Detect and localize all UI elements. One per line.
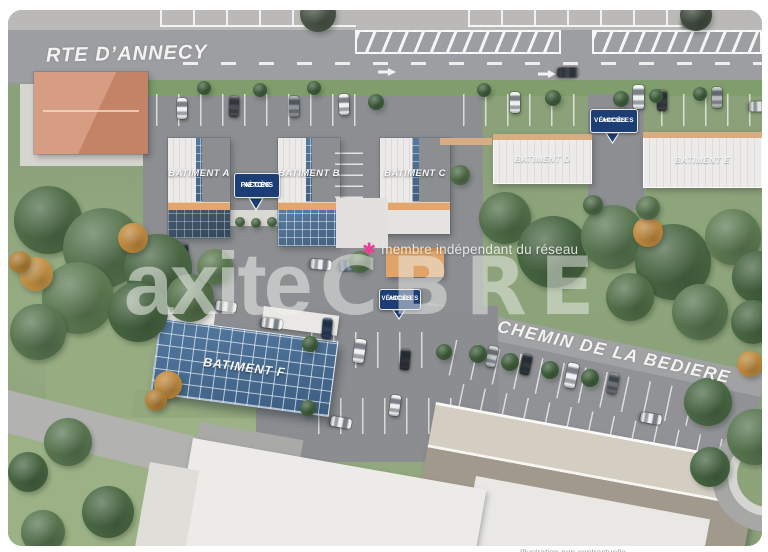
- tree: [253, 83, 267, 97]
- badge-line2: VÉHICULES: [594, 117, 634, 125]
- badge-pointer-icon: [248, 197, 264, 211]
- tree: [541, 361, 559, 379]
- tree: [300, 10, 336, 32]
- pedestrian-access-badge: ACCÈS PIÉTONS: [234, 173, 280, 198]
- tree: [672, 284, 728, 340]
- tree: [197, 249, 233, 285]
- tree: [436, 344, 452, 360]
- tree: [108, 282, 168, 342]
- tree: [469, 345, 487, 363]
- tree: [21, 510, 65, 546]
- tree: [307, 81, 321, 95]
- tree: [450, 165, 470, 185]
- tree: [737, 351, 762, 377]
- tree: [636, 196, 660, 220]
- brand-flower-icon: ✱: [362, 241, 376, 258]
- cropped-caption: Illustration non contractuelle: [520, 547, 626, 552]
- tree: [197, 81, 211, 95]
- tree: [368, 94, 384, 110]
- tree: [649, 89, 663, 103]
- badge-pointer-icon: [605, 132, 620, 144]
- trees-layer: [8, 10, 762, 546]
- vehicle-access-badge-top: ACCÈS VÉHICULES: [590, 109, 638, 133]
- tree: [267, 217, 277, 227]
- tree: [693, 87, 707, 101]
- tree: [583, 195, 603, 215]
- tagline-text: membre indépendant du réseau: [381, 242, 578, 257]
- tree: [581, 369, 599, 387]
- tree: [613, 91, 629, 107]
- tree: [501, 353, 519, 371]
- tree: [300, 400, 316, 416]
- tree: [118, 223, 148, 253]
- tree: [727, 409, 762, 465]
- tree: [606, 273, 654, 321]
- site-plan-render: BATIMENT A BATIMENT B BATIMENT C BATIME: [0, 0, 768, 552]
- tree: [731, 300, 762, 344]
- street-label-rte-annecy: RTE D’ANNECY: [46, 41, 208, 67]
- tree: [477, 83, 491, 97]
- badge-pointer-icon: [392, 309, 406, 320]
- badge-line2: VÉHICULES: [381, 296, 418, 304]
- tree: [235, 217, 245, 227]
- badge-line2: PIÉTONS: [241, 181, 274, 190]
- aerial-photo: BATIMENT A BATIMENT B BATIMENT C BATIME: [8, 10, 762, 546]
- tree: [10, 304, 66, 360]
- tree: [545, 90, 561, 106]
- tree: [8, 452, 48, 492]
- tree: [690, 447, 730, 487]
- network-tagline: ✱ membre indépendant du réseau: [362, 241, 578, 258]
- tree: [680, 10, 712, 31]
- tree: [82, 486, 134, 538]
- tree: [251, 218, 261, 228]
- tree: [145, 389, 167, 411]
- tree: [302, 336, 318, 352]
- tree: [633, 217, 663, 247]
- tree: [44, 418, 92, 466]
- tree: [9, 251, 31, 273]
- vehicle-access-badge-center: ACCÈS VÉHICULES: [379, 289, 421, 310]
